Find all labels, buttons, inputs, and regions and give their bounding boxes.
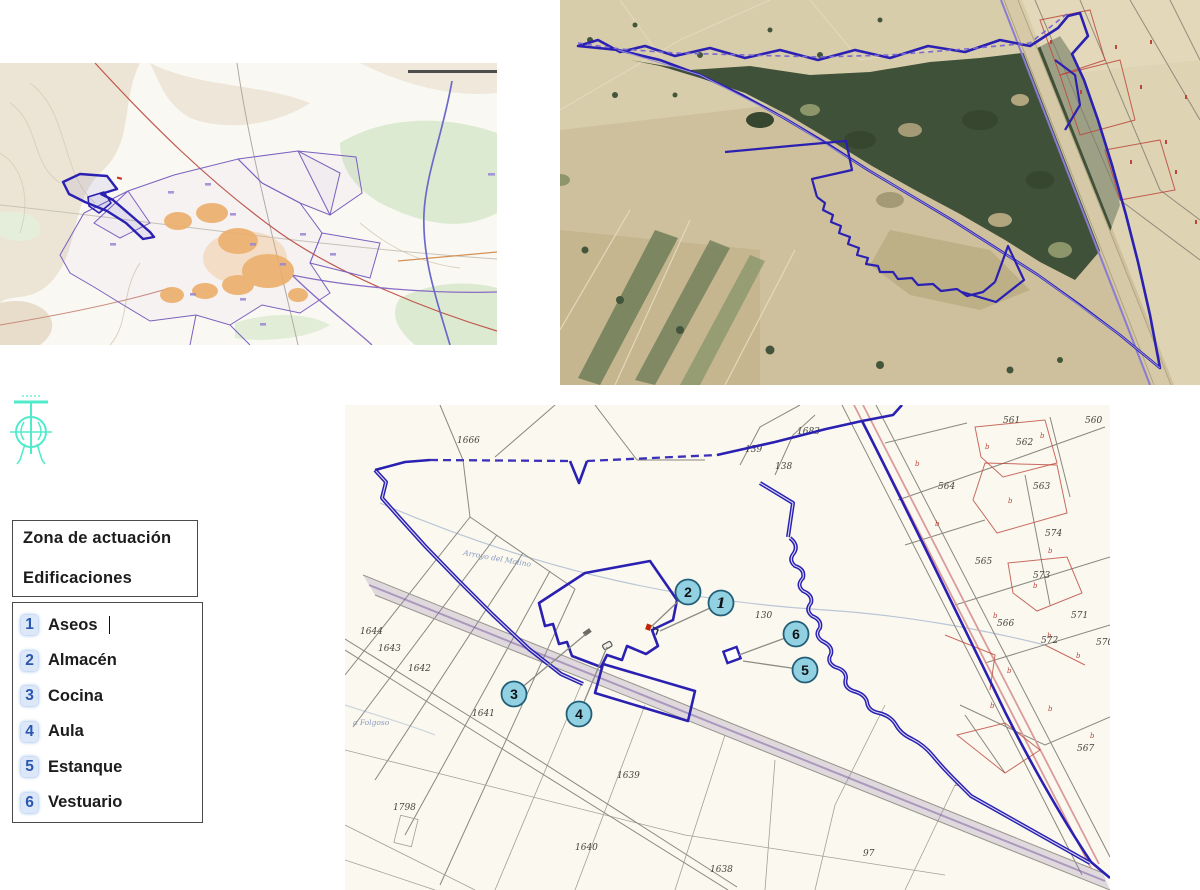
map-marker-3: 3 — [502, 682, 527, 707]
parcel-label: 1642 — [408, 664, 431, 674]
map-marker-4: 4 — [567, 702, 592, 727]
legend-buildings-box[interactable]: 1Aseos2Almacén3Cocina4Aula5Estanque6Vest… — [12, 602, 203, 823]
item-label: Estanque — [48, 758, 122, 777]
parcel-label: 563 — [1033, 482, 1050, 492]
map-marker-5: 5 — [793, 658, 818, 683]
red-parcel-mark: b — [1007, 667, 1012, 675]
red-parcel-mark: b — [1033, 582, 1038, 590]
item-number-badge: 5 — [21, 757, 38, 777]
parcel-label: 574 — [1045, 529, 1062, 539]
parcel-label: 130 — [755, 611, 772, 621]
parcel-label: 1643 — [378, 644, 401, 654]
legend-item-estanque[interactable]: 5Estanque — [21, 754, 194, 780]
item-number-badge: 4 — [21, 722, 38, 742]
legend-item-almacen[interactable]: 2Almacén — [21, 648, 194, 674]
parcel-label: 572 — [1041, 636, 1058, 646]
red-parcel-mark: b — [1040, 432, 1045, 440]
marker-number: 3 — [510, 686, 518, 702]
parcel-label: 573 — [1033, 571, 1050, 581]
legend-item-cocina[interactable]: 3Cocina — [21, 683, 194, 709]
parcel-label: 1639 — [617, 771, 640, 781]
red-parcel-mark: b — [1090, 732, 1095, 740]
map-marker-2: 2 — [676, 580, 701, 605]
legend-zone-box[interactable]: Zona de actuación Edificaciones — [12, 520, 198, 597]
cadastral-map-figure[interactable]: Arroyo del Molino a Folgoso — [345, 405, 1110, 890]
item-number-badge: 3 — [21, 686, 38, 706]
map-marker-6: 6 — [784, 622, 809, 647]
item-number-badge: 1 — [21, 615, 38, 635]
aerial-photo-canvas — [560, 0, 1200, 385]
cad-survey-symbol[interactable] — [8, 392, 60, 470]
parcel-label: 570 — [1096, 638, 1110, 648]
aerial-photo-figure[interactable] — [560, 0, 1200, 385]
red-parcel-mark: b — [1008, 497, 1013, 505]
parcel-label: 571 — [1071, 611, 1088, 621]
legend-item-vestuario[interactable]: 6Vestuario — [21, 790, 194, 816]
item-number-badge: 6 — [21, 793, 38, 813]
scale-bar — [408, 70, 497, 73]
parcel-label: 564 — [938, 482, 955, 492]
survey-symbol-icon — [8, 392, 60, 470]
parcel-label: 566 — [997, 619, 1014, 629]
text-cursor — [109, 616, 111, 634]
parcel-label: 562 — [1016, 438, 1033, 448]
document-page: Arroyo del Molino a Folgoso — [0, 0, 1200, 890]
parcel-label: 138 — [775, 462, 792, 472]
red-parcel-mark: b — [915, 460, 920, 468]
topographic-map-canvas — [0, 63, 497, 345]
parcel-label: 565 — [975, 557, 992, 567]
parcel-label: 1798 — [393, 803, 416, 813]
legend-item-aseos[interactable]: 1Aseos — [21, 612, 194, 638]
map-marker-1: 1 — [709, 591, 734, 616]
legend-zone-line2[interactable]: Edificaciones — [23, 569, 187, 588]
item-label: Cocina — [48, 687, 103, 706]
parcel-label: 97 — [863, 849, 875, 859]
parcel-label: 1638 — [710, 865, 733, 875]
red-parcel-mark: b — [1076, 652, 1081, 660]
red-parcel-mark: b — [935, 520, 940, 528]
marker-number: 6 — [792, 626, 800, 642]
legend-zone-line1[interactable]: Zona de actuación — [23, 529, 187, 548]
marker-number: 1 — [716, 596, 726, 612]
red-parcel-mark: b — [985, 443, 990, 451]
parcel-label: 560 — [1085, 416, 1102, 426]
item-label: Aseos — [48, 616, 98, 635]
parcel-label: 1666 — [457, 436, 480, 446]
item-label: Aula — [48, 722, 84, 741]
marker-number: 4 — [575, 706, 583, 722]
marker-number: 2 — [684, 584, 692, 600]
red-parcel-mark: b — [1048, 547, 1053, 555]
parcel-label: 561 — [1003, 416, 1020, 426]
red-parcel-mark: b — [1048, 705, 1053, 713]
parcel-label: 567 — [1077, 744, 1094, 754]
marker-number: 5 — [801, 662, 809, 678]
item-label: Almacén — [48, 651, 117, 670]
legend-item-aula[interactable]: 4Aula — [21, 719, 194, 745]
item-number-badge: 2 — [21, 651, 38, 671]
item-label: Vestuario — [48, 793, 122, 812]
cadastral-map-canvas: Arroyo del Molino a Folgoso — [345, 405, 1110, 890]
parcel-label: 1641 — [472, 709, 495, 719]
topographic-map-figure[interactable] — [0, 63, 497, 345]
parcel-label: 1640 — [575, 843, 598, 853]
parcel-label: 1644 — [360, 627, 383, 637]
red-parcel-mark: b — [990, 702, 995, 710]
